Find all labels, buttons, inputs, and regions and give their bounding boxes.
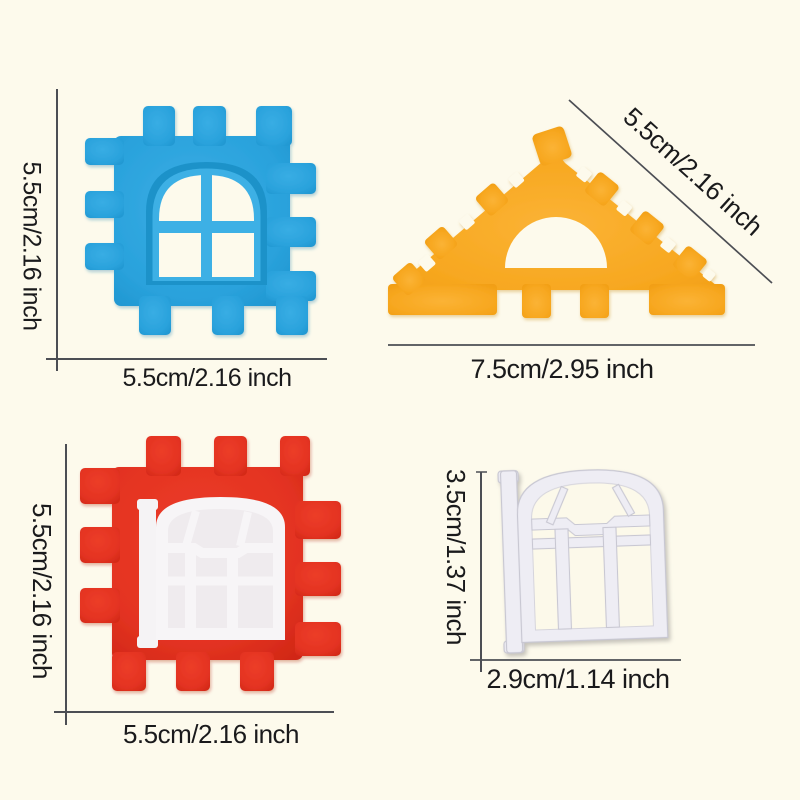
svg-text:5.5cm/2.16 inch: 5.5cm/2.16 inch <box>123 719 299 749</box>
svg-text:5.5cm/2.16 inch: 5.5cm/2.16 inch <box>18 162 46 331</box>
svg-text:5.5cm/2.16 inch: 5.5cm/2.16 inch <box>123 364 292 392</box>
svg-text:5.5cm/2.16 inch: 5.5cm/2.16 inch <box>27 503 57 679</box>
svg-text:7.5cm/2.95 inch: 7.5cm/2.95 inch <box>470 354 653 384</box>
svg-text:2.9cm/1.14 inch: 2.9cm/1.14 inch <box>486 664 669 694</box>
svg-text:3.5cm/1.37 inch: 3.5cm/1.37 inch <box>441 469 471 645</box>
